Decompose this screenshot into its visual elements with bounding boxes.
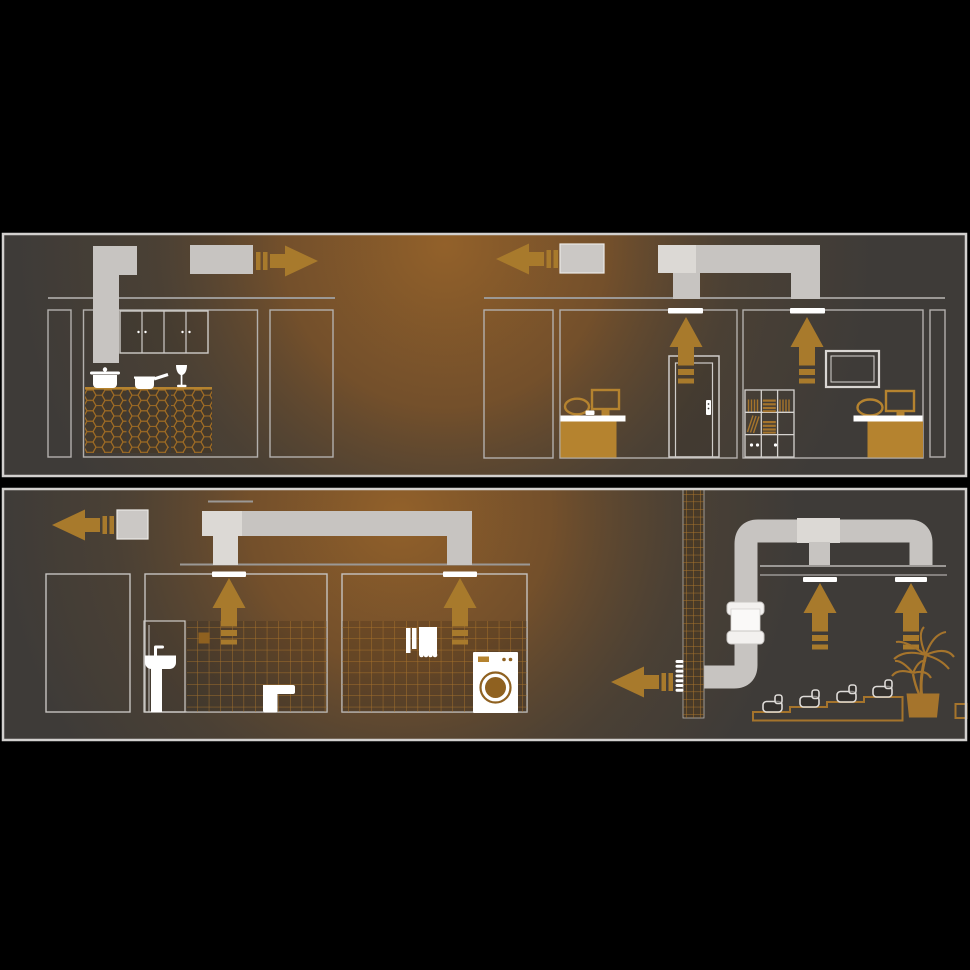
wall-cabinets	[120, 311, 208, 353]
duct-tee-drop	[809, 542, 830, 566]
laundry-interior	[342, 621, 527, 713]
ceiling-extract-vent	[668, 308, 703, 314]
plant-pot	[907, 694, 940, 718]
desk-top	[854, 416, 923, 422]
duct-drop-1	[213, 536, 238, 565]
illustration-canvas	[0, 0, 970, 970]
washer-door-glass	[485, 677, 506, 698]
inline-duct-fan	[727, 602, 764, 644]
bath-exhaust-box	[117, 510, 148, 539]
duct-tee-junction	[797, 518, 840, 543]
tiled-riser-shaft	[683, 489, 704, 718]
duct-drop-1	[673, 273, 700, 299]
top-panel-kitchen-office	[3, 234, 966, 476]
desk-body	[561, 422, 617, 458]
cabinet-handle	[181, 331, 183, 333]
bottom-panel-bath-laundry-lounge	[3, 489, 967, 740]
kitchen-island	[85, 387, 212, 453]
door-lock-plate	[706, 400, 711, 415]
duct-drop-2	[791, 273, 820, 299]
washing-machine-icon	[473, 652, 518, 713]
cabinet-handle	[188, 331, 190, 333]
duct-drop-2	[447, 536, 472, 565]
ceiling-extract-vent	[790, 308, 825, 314]
office-exhaust-box	[560, 244, 604, 273]
cabinet-handle	[774, 443, 777, 446]
desk-top	[561, 416, 626, 422]
ceiling-extract-vent	[895, 577, 927, 582]
ceiling-extract-vent	[443, 572, 477, 578]
keyboard-icon	[586, 411, 595, 416]
accent-tile	[199, 633, 210, 644]
washer-control-panel	[478, 657, 489, 663]
kitchen-exhaust-duct-segment	[190, 245, 253, 274]
hex-tile-pattern	[85, 389, 212, 453]
ceiling-extract-vent	[803, 577, 837, 582]
ventilation-illustration	[0, 0, 970, 970]
cabinet-handle	[756, 443, 759, 446]
cabinet-handle	[137, 331, 139, 333]
ceiling-extract-vent	[212, 572, 246, 578]
desk-body	[868, 422, 924, 458]
monitor-stand	[602, 409, 610, 416]
cabinet-handle	[750, 443, 753, 446]
cabinet-handle	[144, 331, 146, 333]
black-backdrop	[0, 0, 970, 970]
